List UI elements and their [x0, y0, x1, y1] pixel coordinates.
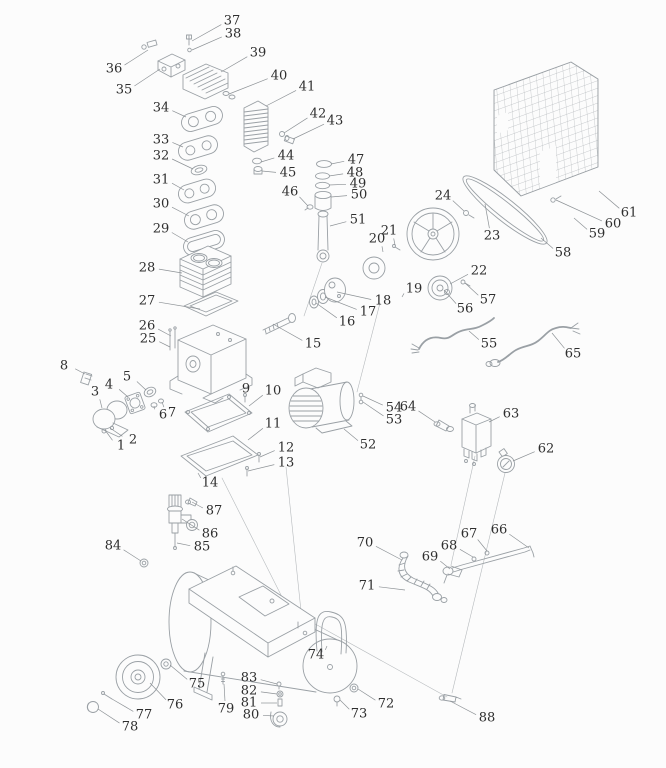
cylinder-gasket	[184, 292, 238, 316]
leader-line-57	[465, 283, 478, 295]
piston-rings	[316, 161, 332, 189]
pipe-nut	[472, 557, 476, 561]
leader-line-39	[221, 57, 247, 72]
leader-line-52	[344, 429, 358, 441]
base-plate	[181, 436, 261, 476]
leader-line-27	[159, 302, 200, 309]
caster-washer	[277, 691, 283, 697]
caster-bushing	[278, 699, 282, 706]
part-number-34: 34	[153, 101, 170, 116]
part-number-88: 88	[479, 711, 496, 726]
part-number-2: 2	[129, 433, 137, 448]
part-number-16: 16	[339, 315, 356, 330]
part-number-15: 15	[305, 337, 322, 352]
belt-guard	[494, 62, 598, 202]
part-number-86: 86	[202, 527, 219, 542]
part-number-79: 79	[218, 702, 235, 717]
crankcase-gasket	[185, 394, 252, 433]
crankshaft	[263, 245, 400, 335]
part-number-63: 63	[503, 407, 520, 422]
leader-line-21	[394, 238, 395, 245]
part-number-59: 59	[589, 227, 606, 242]
leader-line-77	[112, 699, 133, 711]
leader-line-19	[402, 293, 404, 297]
pulley-bolt	[461, 280, 465, 284]
part-number-36: 36	[106, 62, 123, 77]
head-bolt	[223, 92, 229, 96]
leader-line-42	[284, 118, 308, 133]
leader-line-15	[273, 324, 302, 340]
crankcase	[169, 325, 252, 403]
part-number-23: 23	[484, 229, 501, 244]
leader-line-85	[177, 543, 190, 546]
leader-line-68	[460, 549, 473, 557]
leader-line-35	[134, 69, 160, 86]
leader-line-49	[329, 184, 346, 185]
part-number-44: 44	[278, 149, 295, 164]
part-number-25: 25	[140, 332, 157, 347]
leader-line-61	[599, 191, 619, 208]
part-number-74: 74	[308, 648, 325, 663]
leader-line-1	[105, 430, 113, 440]
leader-line-10	[249, 395, 263, 406]
outlet-manifold	[158, 54, 185, 77]
piston	[305, 191, 331, 210]
leader-line-8	[75, 369, 85, 374]
part-number-7: 7	[168, 406, 176, 421]
part-number-40: 40	[271, 69, 288, 84]
part-number-43: 43	[327, 114, 344, 129]
unloader-connector	[434, 420, 454, 432]
leader-line-30	[172, 207, 189, 216]
leader-line-66	[509, 534, 529, 548]
leader-line-47	[331, 161, 344, 164]
head-bolt	[229, 95, 235, 99]
part-number-64: 64	[400, 400, 417, 415]
leader-line-84	[124, 550, 141, 561]
leader-line-73	[340, 700, 349, 709]
leader-line-25	[159, 342, 170, 347]
air-filter	[244, 101, 268, 152]
leader-line-44	[261, 158, 274, 162]
part-number-52: 52	[360, 438, 377, 453]
leader-line-67	[478, 540, 487, 552]
leader-line-64	[419, 411, 436, 422]
leader-line-70	[376, 546, 402, 560]
leader-line-32	[172, 159, 193, 169]
flywheel	[407, 208, 459, 260]
leader-line-28	[159, 269, 182, 273]
part-number-58: 58	[555, 246, 572, 261]
part-number-22: 22	[471, 264, 488, 279]
leader-line-55	[469, 331, 479, 340]
part-number-21: 21	[381, 224, 398, 239]
valve-plate-stack	[176, 104, 227, 257]
leader-line-13	[248, 465, 274, 471]
part-number-14: 14	[202, 476, 219, 491]
part-number-51: 51	[350, 213, 367, 228]
part-number-76: 76	[167, 698, 184, 713]
axle-nut	[140, 559, 148, 567]
leader-line-82	[261, 692, 277, 694]
part-number-4: 4	[105, 378, 113, 393]
leader-line-3	[100, 399, 102, 408]
head-screws	[142, 35, 192, 52]
part-number-32: 32	[153, 149, 170, 164]
drain-cock	[334, 696, 340, 702]
part-number-62: 62	[538, 442, 555, 457]
part-number-13: 13	[278, 456, 295, 471]
part-number-31: 31	[153, 173, 170, 188]
leader-line-29	[172, 233, 188, 243]
leader-line-88	[450, 701, 476, 715]
motor-bolt	[359, 400, 363, 404]
part-number-65: 65	[565, 347, 582, 362]
part-number-27: 27	[139, 294, 156, 309]
leader-line-46	[300, 197, 309, 206]
motor-bolt	[359, 393, 363, 397]
leader-line-36	[125, 50, 149, 65]
part-number-57: 57	[480, 293, 497, 308]
part-number-6: 6	[159, 408, 167, 423]
caster-wheel	[273, 712, 287, 726]
part-number-56: 56	[457, 302, 474, 317]
part-number-29: 29	[153, 222, 170, 237]
part-number-75: 75	[189, 677, 206, 692]
leader-line-65	[552, 333, 565, 348]
leader-line-37	[192, 25, 221, 41]
part-number-87: 87	[206, 504, 223, 519]
eccentric-cam	[363, 257, 385, 279]
leader-line-62	[513, 452, 535, 461]
part-number-66: 66	[491, 523, 508, 538]
part-number-78: 78	[122, 720, 139, 735]
leader-line-2	[110, 428, 122, 436]
part-number-55: 55	[481, 337, 498, 352]
part-number-12: 12	[278, 441, 295, 456]
leader-line-6	[154, 406, 155, 409]
part-number-3: 3	[91, 385, 99, 400]
part-number-68: 68	[441, 539, 458, 554]
part-number-28: 28	[139, 261, 156, 276]
part-number-33: 33	[153, 133, 170, 148]
leader-line-48	[329, 174, 343, 176]
motor	[289, 368, 363, 433]
part-number-42: 42	[310, 107, 327, 122]
leader-line-80	[263, 715, 274, 716]
leader-line-4	[119, 389, 128, 397]
pressure-switch	[462, 404, 491, 466]
leader-line-45	[262, 171, 276, 172]
leader-line-41	[266, 90, 296, 106]
part-number-72: 72	[378, 697, 395, 712]
tank-plug	[350, 684, 358, 692]
flywheel-bolt	[464, 211, 469, 216]
part-number-10: 10	[265, 384, 282, 399]
leader-line-23	[485, 204, 489, 228]
leader-line-5	[137, 382, 146, 391]
leader-line-71	[379, 587, 405, 590]
leader-line-20	[382, 246, 383, 252]
leader-line-78	[98, 709, 120, 723]
part-number-71: 71	[359, 579, 376, 594]
part-number-30: 30	[153, 197, 170, 212]
part-number-60: 60	[605, 217, 622, 232]
wheel-washer	[161, 659, 171, 669]
part-number-35: 35	[116, 83, 133, 98]
cylinder-head	[183, 64, 235, 99]
part-number-26: 26	[139, 319, 156, 334]
part-number-39: 39	[250, 46, 267, 61]
leader-line-12	[260, 451, 275, 457]
diagram-page: 1234567891011121314151617181920212223242…	[0, 0, 666, 768]
connecting-rod	[317, 211, 329, 262]
part-number-61: 61	[621, 206, 638, 221]
leader-line-16	[316, 303, 337, 318]
guard-screw	[551, 198, 555, 202]
part-number-84: 84	[105, 539, 122, 554]
part-number-5: 5	[123, 370, 131, 385]
leader-line-59	[574, 218, 587, 229]
part-number-19: 19	[406, 282, 423, 297]
leader-line-50	[331, 196, 347, 197]
part-number-38: 38	[225, 27, 242, 42]
part-number-18: 18	[375, 294, 392, 309]
leader-line-14	[198, 473, 201, 478]
leader-line-72	[358, 689, 375, 700]
part-number-73: 73	[351, 707, 368, 722]
part-number-82: 82	[241, 684, 258, 699]
part-number-45: 45	[280, 166, 297, 181]
air-tank	[169, 566, 461, 706]
part-number-41: 41	[299, 80, 316, 95]
part-number-9: 9	[242, 382, 250, 397]
part-number-69: 69	[422, 550, 439, 565]
part-number-8: 8	[60, 359, 68, 374]
part-number-1: 1	[117, 439, 125, 454]
exploded-parts-diagram: 1234567891011121314151617181920212223242…	[0, 0, 666, 768]
part-number-70: 70	[357, 536, 374, 551]
part-number-67: 67	[461, 527, 478, 542]
part-number-85: 85	[194, 540, 211, 555]
leader-line-11	[248, 428, 263, 440]
leader-line-24	[453, 201, 464, 211]
part-number-50: 50	[351, 188, 368, 203]
part-number-83: 83	[241, 671, 258, 686]
part-number-11: 11	[265, 417, 282, 432]
caster-assembly	[271, 682, 287, 727]
leader-line-34	[172, 111, 186, 117]
leader-line-51	[330, 222, 346, 226]
part-number-46: 46	[282, 185, 299, 200]
leader-line-40	[229, 79, 268, 94]
leader-line-79	[224, 684, 225, 701]
pressure-gauge	[498, 449, 515, 473]
leader-line-43	[293, 124, 324, 139]
part-number-24: 24	[435, 189, 452, 204]
leader-line-60	[556, 200, 602, 221]
